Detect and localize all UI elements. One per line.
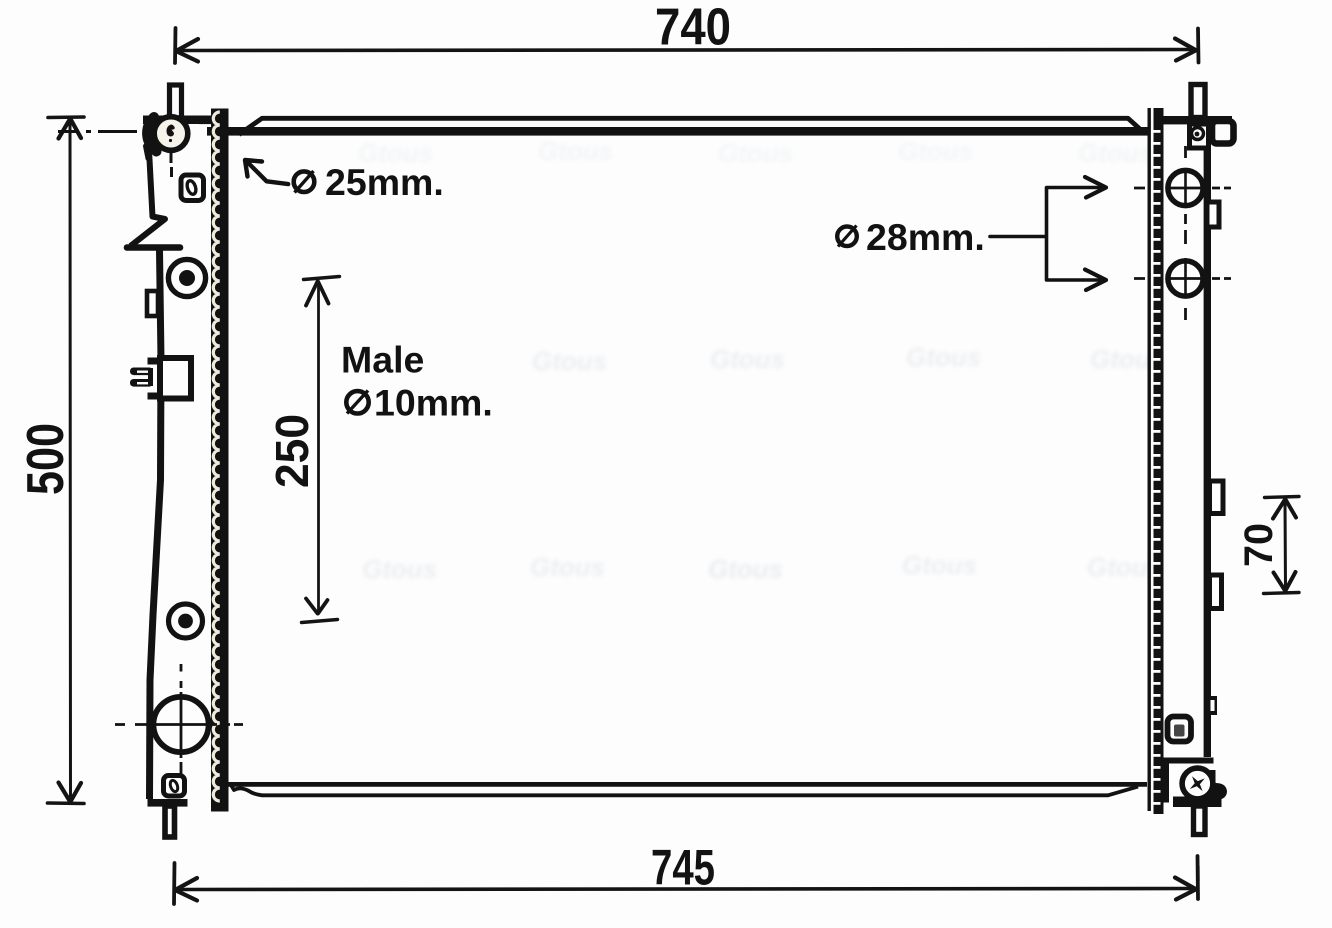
svg-text:740: 740: [655, 0, 731, 57]
svg-text:Gtous: Gtous: [710, 344, 785, 374]
svg-text:Gtous: Gtous: [538, 136, 613, 166]
svg-text:500: 500: [17, 423, 75, 495]
svg-text:Gtous: Gtous: [902, 550, 977, 580]
svg-text:745: 745: [651, 840, 715, 896]
svg-text:10mm.: 10mm.: [374, 382, 493, 424]
svg-text:Gtous: Gtous: [898, 136, 973, 166]
svg-text:Gtous: Gtous: [532, 346, 607, 376]
svg-text:28mm.: 28mm.: [866, 216, 985, 258]
svg-text:250: 250: [266, 414, 318, 488]
svg-text:Gtous: Gtous: [718, 138, 793, 168]
svg-text:Gtous: Gtous: [708, 554, 783, 584]
svg-text:Gtous: Gtous: [1078, 138, 1153, 168]
svg-text:Gtous: Gtous: [530, 552, 605, 582]
svg-text:Gtous: Gtous: [362, 554, 437, 584]
svg-text:Male: Male: [341, 339, 424, 381]
svg-text:Gtous: Gtous: [906, 342, 981, 372]
svg-text:25mm.: 25mm.: [325, 161, 444, 203]
svg-text:70: 70: [1237, 523, 1281, 567]
